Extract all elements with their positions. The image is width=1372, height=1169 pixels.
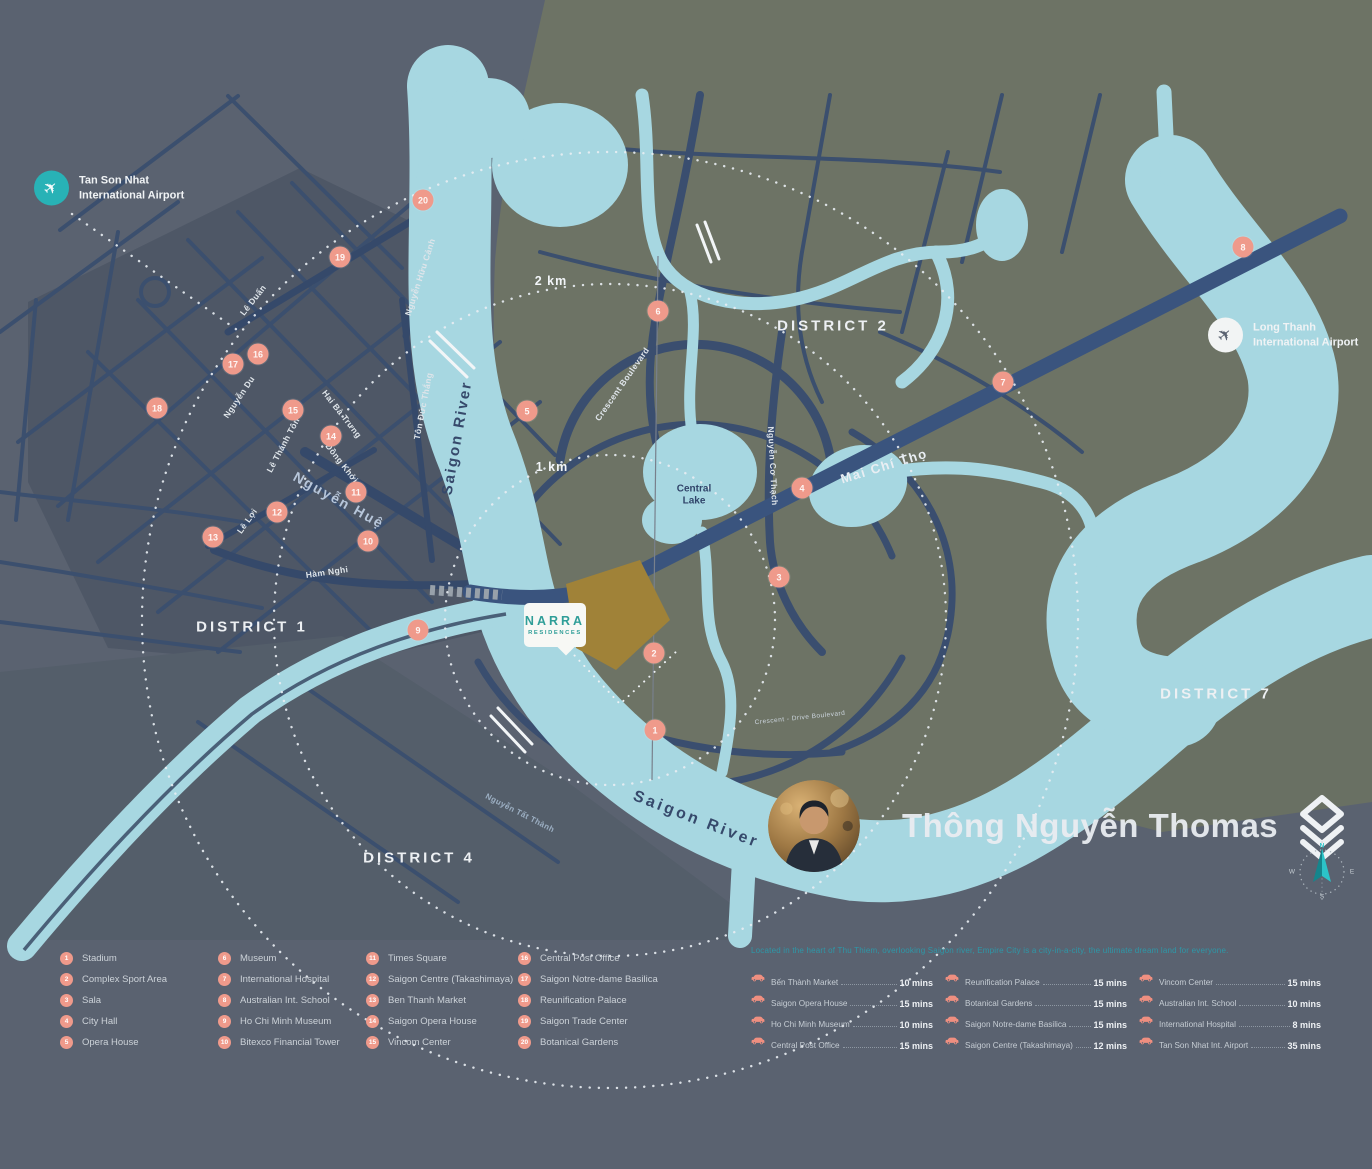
dotted-leader xyxy=(841,984,897,985)
dotted-leader xyxy=(850,1005,897,1006)
map-marker-14: 14 xyxy=(321,426,342,447)
legend-item-number: 9 xyxy=(218,1015,231,1028)
legend-item-number: 5 xyxy=(60,1036,73,1049)
project-name: NARRA xyxy=(525,614,585,628)
travel-time-value: 15 mins xyxy=(899,1041,933,1052)
car-icon xyxy=(751,1011,765,1029)
legend-item-number: 4 xyxy=(60,1015,73,1028)
legend-item: 18Reunification Palace xyxy=(518,990,688,1011)
travel-times-legend: Located in the heart of Thu Thiem, overl… xyxy=(751,946,1326,1052)
travel-time-value: 15 mins xyxy=(1093,999,1127,1010)
airport-name-line1: Tan Son Nhat xyxy=(79,174,184,188)
travel-time-item: Bến Thành Market10 mins xyxy=(751,968,933,989)
legend-item-number: 6 xyxy=(218,952,231,965)
scale-ring-label: 1 km xyxy=(536,460,569,474)
travel-time-value: 35 mins xyxy=(1287,1041,1321,1052)
dotted-leader xyxy=(1035,1005,1091,1006)
avatar xyxy=(768,780,860,872)
legend-column: 6Museum7International Hospital8Australia… xyxy=(218,948,366,1053)
legend-item-number: 11 xyxy=(366,952,379,965)
car-icon xyxy=(1139,990,1153,1008)
district-label: DISTRICT 7 xyxy=(1160,686,1272,703)
car-icon xyxy=(1139,969,1153,987)
legend-column: 16Central Post Office17Saigon Notre-dame… xyxy=(518,948,688,1053)
legend-item-number: 15 xyxy=(366,1036,379,1049)
travel-time-item: Botanical Gardens15 mins xyxy=(945,989,1127,1010)
travel-time-item: Tan Son Nhat Int. Airport35 mins xyxy=(1139,1031,1321,1052)
legend-item-label: Reunification Palace xyxy=(540,995,627,1006)
car-icon xyxy=(945,1032,959,1050)
legend-item-number: 10 xyxy=(218,1036,231,1049)
legend-item-number: 1 xyxy=(60,952,73,965)
car-icon xyxy=(1139,1032,1153,1050)
map-marker-13: 13 xyxy=(203,527,224,548)
legend-item-label: Stadium xyxy=(82,953,117,964)
airport-name-line1: Long Thanh xyxy=(1253,321,1358,335)
car-icon xyxy=(751,1032,765,1050)
legend-item: 5Opera House xyxy=(60,1032,218,1053)
travel-time-item: Saigon Centre (Takashimaya)12 mins xyxy=(945,1031,1127,1052)
legend-item-label: Saigon Centre (Takashimaya) xyxy=(388,974,513,985)
legend-item-label: Bitexco Financial Tower xyxy=(240,1037,340,1048)
dotted-leader xyxy=(853,1026,898,1027)
compass-east-label: E xyxy=(1350,869,1354,876)
legend-item-number: 12 xyxy=(366,973,379,986)
legend-item-label: Saigon Opera House xyxy=(388,1016,477,1027)
brand-block: N W E S xyxy=(1286,790,1358,900)
legend-item-label: Botanical Gardens xyxy=(540,1037,618,1048)
district-label: DISTRICT 4 xyxy=(363,850,475,867)
travel-time-item: International Hospital8 mins xyxy=(1139,1010,1321,1031)
legend-item: 8Australian Int. School xyxy=(218,990,366,1011)
airport-name-line2: International Airport xyxy=(1253,335,1358,349)
legend-item-number: 16 xyxy=(518,952,531,965)
travel-place-name: Saigon Notre-dame Basilica xyxy=(965,1020,1066,1031)
legend-item-number: 8 xyxy=(218,994,231,1007)
legend-item-label: Complex Sport Area xyxy=(82,974,167,985)
legend-item-label: Saigon Notre-dame Basilica xyxy=(540,974,658,985)
dotted-leader xyxy=(1239,1026,1291,1027)
legend-item: 14Saigon Opera House xyxy=(366,1011,518,1032)
map-marker-9: 9 xyxy=(408,620,429,641)
travel-time-value: 15 mins xyxy=(899,999,933,1010)
travel-place-name: Saigon Centre (Takashimaya) xyxy=(965,1041,1073,1052)
airplane-icon: ✈ xyxy=(1208,318,1243,353)
legend-item-label: Ben Thanh Market xyxy=(388,995,466,1006)
map-marker-20: 20 xyxy=(413,190,434,211)
legend-item-label: Australian Int. School xyxy=(240,995,330,1006)
travel-place-name: Australian Int. School xyxy=(1159,999,1236,1010)
travel-place-name: Botanical Gardens xyxy=(965,999,1032,1010)
travel-time-item: Vincom Center15 mins xyxy=(1139,968,1321,989)
travel-place-name: Ho Chi Minh Museum xyxy=(771,1020,850,1031)
travel-time-column: Reunification Palace15 minsBotanical Gar… xyxy=(945,968,1127,1052)
legend-item: 4City Hall xyxy=(60,1011,218,1032)
travel-time-value: 10 mins xyxy=(899,1020,933,1031)
travel-time-value: 10 mins xyxy=(899,978,933,989)
travel-time-value: 10 mins xyxy=(1287,999,1321,1010)
legend-item-label: Sala xyxy=(82,995,101,1006)
travel-place-name: Tan Son Nhat Int. Airport xyxy=(1159,1041,1248,1052)
legend-item: 1Stadium xyxy=(60,948,218,969)
watermark-name: Thông Nguyễn Thomas xyxy=(902,807,1278,845)
map-marker-8: 8 xyxy=(1233,237,1254,258)
legend-item-label: Museum xyxy=(240,953,276,964)
project-subtitle: RESIDENCES xyxy=(528,630,582,636)
airport-name-line2: International Airport xyxy=(79,188,184,202)
map-marker-17: 17 xyxy=(223,354,244,375)
airport-label: Long ThanhInternational Airport xyxy=(1253,321,1358,350)
legend-item: 9Ho Chi Minh Museum xyxy=(218,1011,366,1032)
legend-item: 7International Hospital xyxy=(218,969,366,990)
travel-time-value: 12 mins xyxy=(1093,1041,1127,1052)
central-lake-label: Central Lake xyxy=(677,484,711,507)
legend-item: 10Bitexco Financial Tower xyxy=(218,1032,366,1053)
travel-time-column: Bến Thành Market10 minsSaigon Opera Hous… xyxy=(751,968,933,1052)
dotted-leader xyxy=(1069,1026,1091,1027)
compass-north-label: N xyxy=(1320,843,1325,850)
dotted-leader xyxy=(1251,1047,1285,1048)
dotted-leader xyxy=(1239,1005,1285,1006)
legend-item-label: Central Post Office xyxy=(540,953,620,964)
map-marker-19: 19 xyxy=(330,247,351,268)
map-marker-11: 11 xyxy=(346,482,367,503)
legend-item-number: 2 xyxy=(60,973,73,986)
legend-item-label: Vincom Center xyxy=(388,1037,451,1048)
map-marker-7: 7 xyxy=(993,372,1014,393)
travel-time-item: Saigon Opera House15 mins xyxy=(751,989,933,1010)
airport-label: Tan Son NhatInternational Airport xyxy=(79,174,184,203)
legend-item: 20Botanical Gardens xyxy=(518,1032,688,1053)
legend-item-label: International Hospital xyxy=(240,974,329,985)
compass-south-label: S xyxy=(1320,894,1324,901)
map-marker-5: 5 xyxy=(517,401,538,422)
car-icon xyxy=(751,990,765,1008)
travel-place-name: Central Post Office xyxy=(771,1041,840,1052)
legend-item: 6Museum xyxy=(218,948,366,969)
map-marker-16: 16 xyxy=(248,344,269,365)
legend-item-label: Opera House xyxy=(82,1037,139,1048)
legend-item-label: Times Square xyxy=(388,953,447,964)
compass-icon xyxy=(1300,842,1344,900)
places-legend: 1Stadium2Complex Sport Area3Sala4City Ha… xyxy=(60,948,688,1053)
legend-column: 1Stadium2Complex Sport Area3Sala4City Ha… xyxy=(60,948,218,1053)
legend-item: 13Ben Thanh Market xyxy=(366,990,518,1011)
car-icon xyxy=(945,969,959,987)
car-icon xyxy=(945,1011,959,1029)
legend-item: 19Saigon Trade Center xyxy=(518,1011,688,1032)
legend-item: 17Saigon Notre-dame Basilica xyxy=(518,969,688,990)
travel-time-item: Saigon Notre-dame Basilica15 mins xyxy=(945,1010,1127,1031)
travel-time-item: Ho Chi Minh Museum10 mins xyxy=(751,1010,933,1031)
legend-item: 3Sala xyxy=(60,990,218,1011)
map-marker-18: 18 xyxy=(147,398,168,419)
travel-place-name: Saigon Opera House xyxy=(771,999,847,1010)
map-marker-4: 4 xyxy=(792,478,813,499)
legend-item: 12Saigon Centre (Takashimaya) xyxy=(366,969,518,990)
map-marker-2: 2 xyxy=(644,643,665,664)
scale-ring-label: 2 km xyxy=(535,274,568,288)
map-marker-15: 15 xyxy=(283,400,304,421)
map-marker-3: 3 xyxy=(769,567,790,588)
travel-time-item: Reunification Palace15 mins xyxy=(945,968,1127,989)
travel-time-value: 15 mins xyxy=(1093,1020,1127,1031)
map-marker-1: 1 xyxy=(645,720,666,741)
legend-item-number: 13 xyxy=(366,994,379,1007)
legend-item-label: Saigon Trade Center xyxy=(540,1016,628,1027)
map-marker-6: 6 xyxy=(648,301,669,322)
legend-item-number: 7 xyxy=(218,973,231,986)
legend-column: 11Times Square12Saigon Centre (Takashima… xyxy=(366,948,518,1053)
travel-place-name: Vincom Center xyxy=(1159,978,1213,989)
compass-west-label: W xyxy=(1289,869,1295,876)
travel-time-value: 8 mins xyxy=(1292,1020,1321,1031)
map-marker-10: 10 xyxy=(358,531,379,552)
legend-item-number: 18 xyxy=(518,994,531,1007)
airport-badge: ✈Long ThanhInternational Airport xyxy=(1208,318,1358,353)
travel-time-item: Australian Int. School10 mins xyxy=(1139,989,1321,1010)
airport-badge: ✈Tan Son NhatInternational Airport xyxy=(34,171,184,206)
avatar-photo xyxy=(768,780,860,872)
legend-item: 16Central Post Office xyxy=(518,948,688,969)
travel-time-item: Central Post Office15 mins xyxy=(751,1031,933,1052)
legend-item-number: 17 xyxy=(518,973,531,986)
dotted-leader xyxy=(1076,1047,1092,1048)
legend-item-number: 20 xyxy=(518,1036,531,1049)
travel-time-column: Vincom Center15 minsAustralian Int. Scho… xyxy=(1139,968,1321,1052)
legend-item-number: 19 xyxy=(518,1015,531,1028)
legend-item-number: 14 xyxy=(366,1015,379,1028)
airplane-icon: ✈ xyxy=(34,171,69,206)
tagline: Located in the heart of Thu Thiem, overl… xyxy=(751,946,1326,955)
legend-item: 2Complex Sport Area xyxy=(60,969,218,990)
travel-place-name: Bến Thành Market xyxy=(771,978,838,989)
car-icon xyxy=(751,969,765,987)
travel-place-name: Reunification Palace xyxy=(965,978,1040,989)
district-label: DISTRICT 1 xyxy=(196,619,308,636)
dotted-leader xyxy=(1216,984,1285,985)
legend-item: 11Times Square xyxy=(366,948,518,969)
dotted-leader xyxy=(1043,984,1092,985)
legend-item-label: Ho Chi Minh Museum xyxy=(240,1016,331,1027)
map-marker-12: 12 xyxy=(267,502,288,523)
district-label: DISTRICT 2 xyxy=(777,318,889,335)
legend-item: 15Vincom Center xyxy=(366,1032,518,1053)
dotted-leader xyxy=(843,1047,898,1048)
car-icon xyxy=(1139,1011,1153,1029)
car-icon xyxy=(945,990,959,1008)
legend-item-number: 3 xyxy=(60,994,73,1007)
travel-time-value: 15 mins xyxy=(1287,978,1321,989)
location-map-poster: Lê DuẩnNguyễn DuHai Bà TrưngLê Thánh Tôn… xyxy=(0,0,1372,1169)
travel-place-name: International Hospital xyxy=(1159,1020,1236,1031)
watermark: Thông Nguyễn Thomas xyxy=(768,780,1278,872)
legend-item-label: City Hall xyxy=(82,1016,117,1027)
project-badge: NARRA RESIDENCES xyxy=(524,603,586,647)
travel-time-value: 15 mins xyxy=(1093,978,1127,989)
